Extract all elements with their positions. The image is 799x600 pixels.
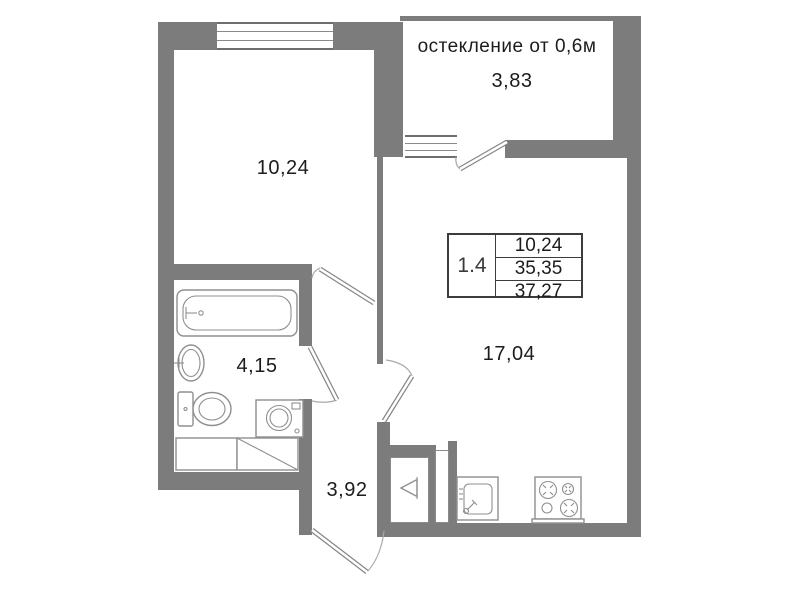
unit-total-area: 35,35 <box>496 258 581 281</box>
kitchen-sink-icon <box>457 477 498 520</box>
balcony-glazing-note: остекление от 0,6м <box>407 36 607 58</box>
toilet-icon <box>178 392 231 426</box>
stove-icon <box>532 477 584 523</box>
entrance-door <box>312 530 384 572</box>
washing-machine-icon <box>256 400 303 437</box>
unit-number: 1.4 <box>449 235 496 296</box>
balcony-area-label: 3,83 <box>472 70 552 93</box>
unit-living-area: 10,24 <box>496 235 581 258</box>
unit-overall-area: 37,27 <box>496 281 581 303</box>
bedroom-door <box>312 268 374 303</box>
unit-info-box: 1.4 10,24 35,35 37,27 <box>447 233 583 298</box>
unit-areas: 10,24 35,35 37,27 <box>496 235 581 296</box>
balcony-door <box>456 142 507 169</box>
bedroom-area-label: 10,24 <box>243 157 323 180</box>
living-kitchen-area-label: 17,04 <box>469 343 549 366</box>
wardrobe-icon <box>176 438 298 470</box>
hallway-area-label: 3,92 <box>307 479 387 502</box>
plan-symbols-layer <box>0 0 799 600</box>
bathroom-door <box>310 347 337 402</box>
floor-plan: 10,24 остекление от 0,6м 3,83 17,04 4,15… <box>0 0 799 600</box>
bathtub-icon <box>177 290 297 336</box>
washbasin-icon <box>174 345 204 381</box>
vent-shaft-icon <box>401 477 417 499</box>
bathroom-area-label: 4,15 <box>217 355 297 378</box>
living-room-door <box>384 360 412 421</box>
